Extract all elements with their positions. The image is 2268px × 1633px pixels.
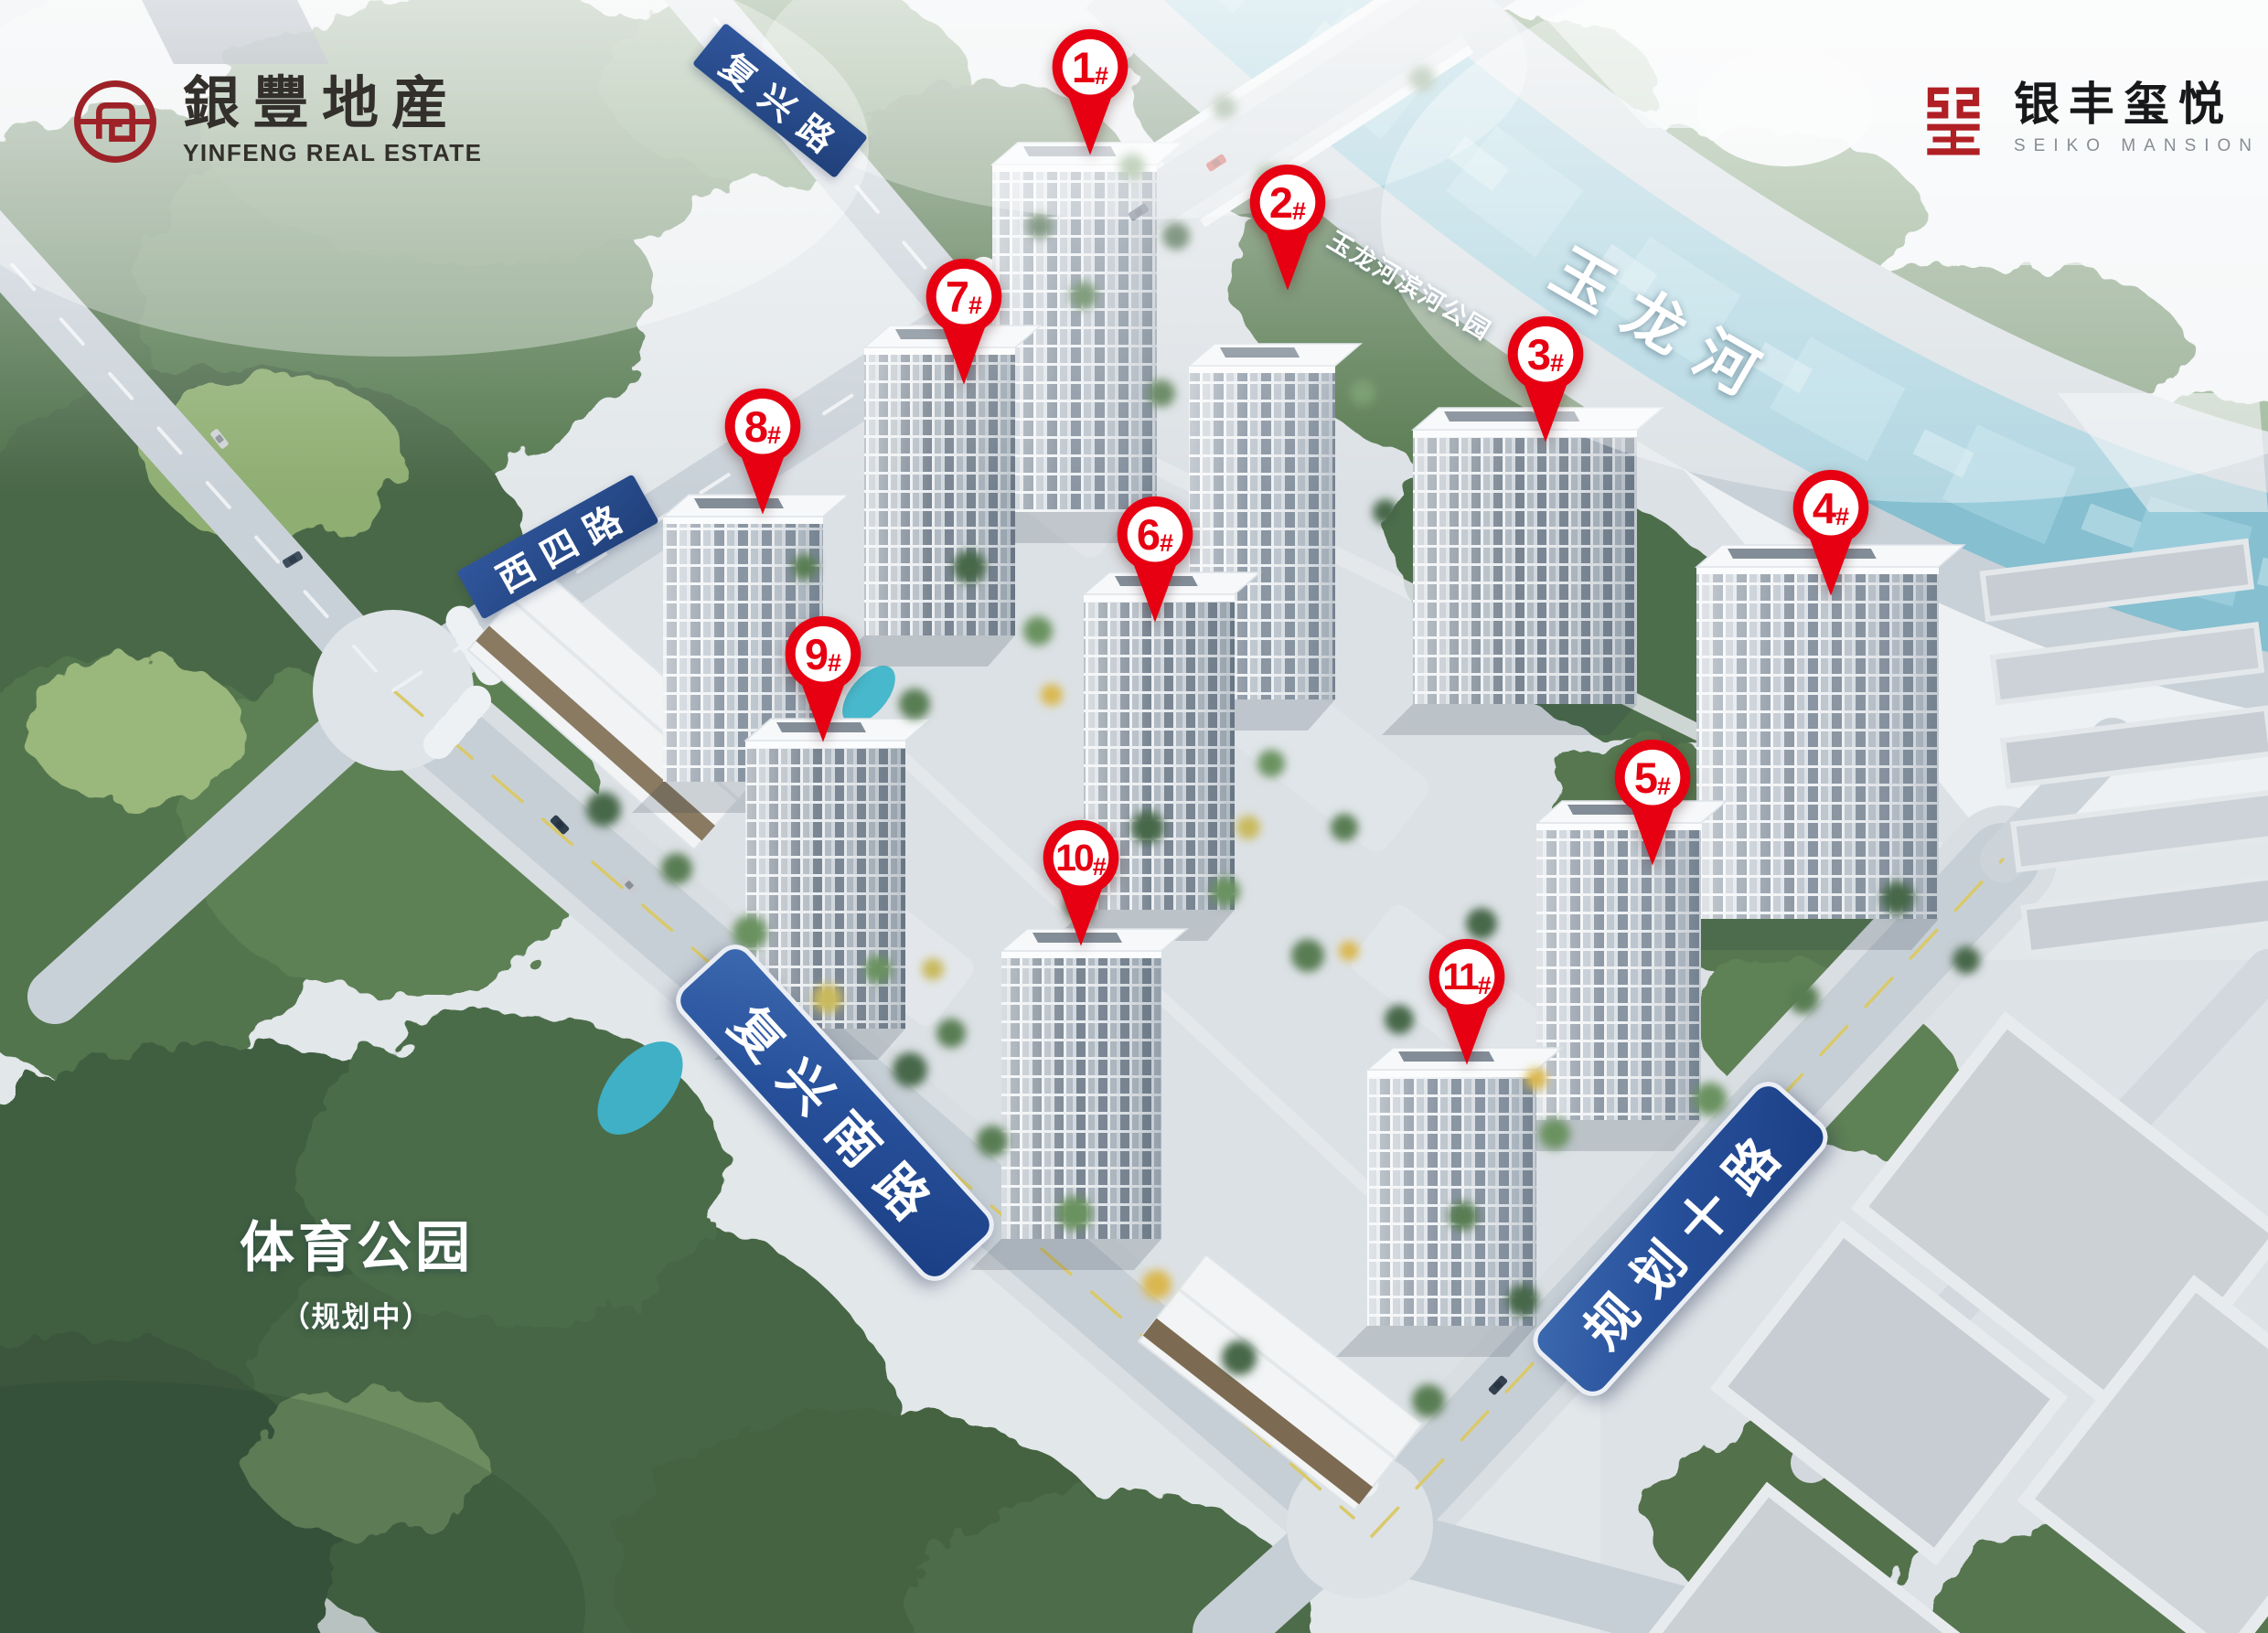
building-number-suffix: # — [1835, 505, 1849, 529]
building-marker-1#[interactable]: 1# — [1048, 27, 1132, 162]
building-number-suffix: # — [1657, 774, 1671, 799]
project-name-cn: 银丰玺悦 — [2014, 81, 2260, 127]
building-number: 6 — [1137, 513, 1159, 556]
building-number-suffix: # — [1292, 199, 1306, 224]
tower-building — [1665, 545, 1964, 950]
building-marker-label: 9# — [781, 626, 865, 681]
building-marker-6#[interactable]: 6# — [1113, 495, 1197, 629]
building-number: 8 — [744, 405, 766, 448]
sports-park-name: 体育公园 — [229, 1203, 485, 1283]
building-marker-7#[interactable]: 7# — [922, 257, 1006, 391]
building-number-suffix: # — [1550, 351, 1564, 376]
project-logo: 银丰玺悦 SEIKO MANSION — [1915, 80, 2260, 157]
building-marker-label: 6# — [1113, 507, 1197, 561]
building-number: 4 — [1813, 486, 1835, 529]
seiko-mansion-seal-icon — [1915, 80, 1992, 157]
developer-name-cn: 銀豐地産 — [183, 75, 483, 132]
building-number: 7 — [946, 275, 968, 318]
building-marker-label: 8# — [721, 399, 805, 454]
developer-name-en: YINFENG REAL ESTATE — [183, 139, 483, 167]
sports-park-label: 体育公园 （规划中） — [229, 1203, 485, 1335]
building-marker-5#[interactable]: 5# — [1610, 738, 1695, 872]
building-marker-8#[interactable]: 8# — [721, 387, 805, 521]
building-marker-label: 3# — [1503, 326, 1588, 381]
building-marker-9#[interactable]: 9# — [781, 614, 865, 749]
building-marker-11#[interactable]: 11# — [1425, 937, 1509, 1072]
building-number: 11 — [1442, 958, 1476, 996]
building-number: 1 — [1072, 46, 1094, 89]
building-number-suffix: # — [1160, 531, 1173, 556]
building-number: 5 — [1634, 756, 1656, 799]
building-marker-3#[interactable]: 3# — [1503, 315, 1588, 449]
building-number-suffix: # — [1478, 974, 1492, 998]
building-marker-label: 7# — [922, 269, 1006, 324]
building-marker-label: 11# — [1425, 949, 1509, 1004]
site-aerial-map: 銀豐地産 YINFENG REAL ESTATE 银丰玺悦 SEIKO MANS… — [0, 0, 2268, 1633]
aerial-render-canvas — [0, 0, 2268, 1633]
building-marker-label: 2# — [1246, 175, 1330, 229]
building-marker-label: 4# — [1789, 480, 1873, 535]
developer-logo: 銀豐地産 YINFENG REAL ESTATE — [71, 75, 483, 167]
building-number: 10 — [1055, 839, 1092, 877]
building-marker-label: 1# — [1048, 39, 1132, 94]
building-marker-10#[interactable]: 10# — [1039, 818, 1123, 953]
building-number: 3 — [1527, 333, 1549, 376]
project-name-en: SEIKO MANSION — [2014, 136, 2260, 156]
building-number: 2 — [1269, 181, 1291, 224]
yinfeng-seal-icon — [71, 78, 159, 165]
building-marker-2#[interactable]: 2# — [1246, 163, 1330, 297]
building-number: 9 — [805, 633, 827, 676]
building-marker-4#[interactable]: 4# — [1789, 468, 1873, 603]
building-number-suffix: # — [828, 651, 841, 676]
building-number-suffix: # — [1095, 64, 1108, 89]
sports-park-status: （规划中） — [229, 1294, 485, 1335]
building-marker-label: 5# — [1610, 750, 1695, 805]
building-number-suffix: # — [1093, 855, 1107, 880]
building-marker-label: 10# — [1039, 830, 1123, 885]
building-number-suffix: # — [968, 294, 982, 318]
building-number-suffix: # — [767, 423, 781, 448]
